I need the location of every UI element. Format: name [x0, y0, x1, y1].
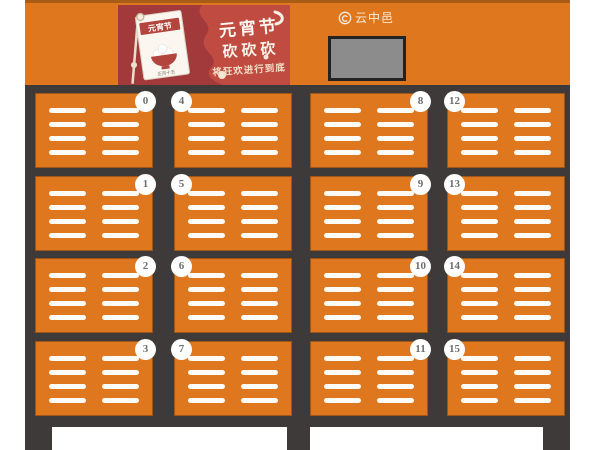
vent-bar [241, 287, 278, 292]
vent-bar [377, 315, 414, 320]
vent-bar [49, 205, 86, 210]
vent-bar [241, 108, 278, 113]
vent-bar [377, 273, 414, 278]
vent-bar [514, 398, 551, 403]
vent-bar [241, 122, 278, 127]
locker-door[interactable]: 8 [310, 93, 428, 168]
locker-number-badge: 9 [410, 174, 431, 195]
vent-slats [175, 94, 291, 155]
vent-bar [324, 301, 361, 306]
vent-bar [49, 384, 86, 389]
locker-door[interactable]: 1 [35, 176, 153, 251]
vent-bar [49, 136, 86, 141]
vent-bar [102, 273, 139, 278]
vent-bar [377, 384, 414, 389]
locker-column: 4 5 [174, 93, 292, 416]
vent-bar [102, 301, 139, 306]
vent-bar [49, 398, 86, 403]
vent-bar [188, 315, 225, 320]
locker-column: 0 1 [35, 93, 153, 416]
locker-number-badge: 4 [171, 91, 192, 112]
vent-bar [49, 301, 86, 306]
vent-bar [461, 108, 498, 113]
vent-bar [461, 191, 498, 196]
vent-bar [49, 191, 86, 196]
vent-bar [188, 370, 225, 375]
vent-bar [514, 233, 551, 238]
vent-bar [514, 384, 551, 389]
vent-bar [102, 384, 139, 389]
vent-bar [324, 356, 361, 361]
vent-bar [461, 219, 498, 224]
locker-number-badge: 10 [410, 256, 431, 277]
vent-bar [102, 356, 139, 361]
vent-bar [49, 219, 86, 224]
brand-logo-icon [338, 11, 352, 25]
vent-bar [377, 136, 414, 141]
vent-bar [461, 122, 498, 127]
vent-slats [448, 94, 564, 155]
vent-bar [188, 384, 225, 389]
vent-bar [461, 233, 498, 238]
vent-bar [49, 233, 86, 238]
vent-bar [377, 219, 414, 224]
vent-bar [377, 287, 414, 292]
locker-door[interactable]: 9 [310, 176, 428, 251]
brand-name: 云中邑 [355, 9, 394, 26]
vent-bar [102, 136, 139, 141]
vent-bar [241, 233, 278, 238]
vent-bar [514, 108, 551, 113]
vent-bar [188, 219, 225, 224]
vent-slats [175, 259, 291, 320]
vent-bar [514, 150, 551, 155]
vent-slats [175, 177, 291, 238]
vent-bar [514, 356, 551, 361]
vent-bar [188, 233, 225, 238]
locker-door[interactable]: 6 [174, 258, 292, 333]
vent-bar [49, 287, 86, 292]
vent-bar [102, 370, 139, 375]
vent-bar [188, 287, 225, 292]
vent-bar [241, 301, 278, 306]
vent-slats [448, 177, 564, 238]
locker-number-badge: 8 [410, 91, 431, 112]
vent-bar [102, 219, 139, 224]
promo-banner: 元宵节 正月十五 元宵节 砍砍砍 将狂欢进行到底 [118, 5, 290, 85]
vent-bar [49, 315, 86, 320]
vent-bar [324, 205, 361, 210]
locker-number-badge: 2 [135, 256, 156, 277]
vent-bar [324, 384, 361, 389]
calendar-ring-icon [136, 13, 144, 21]
cabinet-leg-left [25, 427, 52, 450]
vent-bar [377, 150, 414, 155]
vent-bar [514, 122, 551, 127]
vent-bar [188, 273, 225, 278]
locker-number-badge: 3 [135, 339, 156, 360]
vent-bar [188, 398, 225, 403]
vent-bar [514, 219, 551, 224]
screen-display[interactable] [328, 36, 406, 81]
locker-grid: 0 1 [35, 93, 565, 416]
vent-bar [377, 233, 414, 238]
vent-bar [49, 370, 86, 375]
vent-bar [324, 219, 361, 224]
locker-number-badge: 1 [135, 174, 156, 195]
vent-bar [377, 191, 414, 196]
vent-bar [514, 315, 551, 320]
vent-bar [514, 205, 551, 210]
vent-bar [188, 205, 225, 210]
locker-door[interactable]: 13 [447, 176, 565, 251]
vent-bar [461, 301, 498, 306]
vent-bar [514, 191, 551, 196]
vent-bar [514, 287, 551, 292]
vent-bar [461, 356, 498, 361]
locker-door[interactable]: 15 [447, 341, 565, 416]
vent-bar [324, 191, 361, 196]
vent-bar [49, 356, 86, 361]
vent-bar [188, 108, 225, 113]
locker-number-badge: 7 [171, 339, 192, 360]
vent-bar [241, 219, 278, 224]
vent-bar [324, 287, 361, 292]
vent-bar [514, 136, 551, 141]
locker-column: 12 13 [447, 93, 565, 416]
vent-bar [188, 122, 225, 127]
locker-number-badge: 13 [444, 174, 465, 195]
locker-door[interactable]: 3 [35, 341, 153, 416]
promo-banner-art: 元宵节 正月十五 元宵节 砍砍砍 将狂欢进行到底 [118, 5, 290, 85]
vent-bar [377, 301, 414, 306]
vent-bar [324, 122, 361, 127]
locker-door[interactable]: 5 [174, 176, 292, 251]
vent-bar [324, 136, 361, 141]
vent-bar [324, 398, 361, 403]
vent-bar [241, 150, 278, 155]
vent-bar [324, 150, 361, 155]
vent-bar [461, 370, 498, 375]
vent-bar [324, 233, 361, 238]
cabinet-header: 元宵节 正月十五 元宵节 砍砍砍 将狂欢进行到底 [25, 0, 570, 85]
vent-bar [188, 356, 225, 361]
vent-bar [377, 205, 414, 210]
vent-bar [102, 191, 139, 196]
vent-bar [188, 191, 225, 196]
locker-door[interactable]: 7 [174, 341, 292, 416]
vent-bar [324, 315, 361, 320]
locker-door[interactable]: 4 [174, 93, 292, 168]
locker-door[interactable]: 14 [447, 258, 565, 333]
vent-bar [49, 150, 86, 155]
vent-bar [461, 315, 498, 320]
vent-bar [377, 356, 414, 361]
vent-slats [175, 342, 291, 403]
cabinet-leg-right [543, 427, 570, 450]
vent-bar [241, 273, 278, 278]
locker-door[interactable]: 10 [310, 258, 428, 333]
vent-bar [49, 108, 86, 113]
vent-bar [377, 370, 414, 375]
vent-bar [461, 287, 498, 292]
locker-number-badge: 12 [444, 91, 465, 112]
vent-bar [241, 136, 278, 141]
vent-bar [461, 150, 498, 155]
locker-door[interactable]: 11 [310, 341, 428, 416]
vent-bar [461, 205, 498, 210]
vent-bar [102, 108, 139, 113]
vent-bar [514, 370, 551, 375]
vent-bar [102, 150, 139, 155]
locker-number-badge: 15 [444, 339, 465, 360]
vent-slats [448, 342, 564, 403]
vent-bar [102, 398, 139, 403]
vent-bar [461, 384, 498, 389]
locker-column: 8 9 [310, 93, 428, 416]
vent-bar [514, 301, 551, 306]
vent-bar [241, 191, 278, 196]
cabinet-body: 元宵节 正月十五 元宵节 砍砍砍 将狂欢进行到底 [25, 0, 570, 427]
vent-bar [324, 108, 361, 113]
vent-bar [241, 356, 278, 361]
vent-bar [102, 122, 139, 127]
vent-bar [49, 122, 86, 127]
vent-bar [241, 315, 278, 320]
locker-machine: 元宵节 正月十五 元宵节 砍砍砍 将狂欢进行到底 [0, 0, 600, 450]
vent-bar [102, 205, 139, 210]
locker-number-badge: 11 [410, 339, 431, 360]
vent-bar [461, 398, 498, 403]
vent-bar [241, 384, 278, 389]
vent-bar [377, 108, 414, 113]
vent-bar [188, 301, 225, 306]
vent-bar [102, 287, 139, 292]
locker-door[interactable]: 12 [447, 93, 565, 168]
vent-bar [377, 398, 414, 403]
cabinet-leg-middle [287, 427, 310, 450]
vent-bar [377, 122, 414, 127]
vent-bar [461, 273, 498, 278]
vent-bar [514, 273, 551, 278]
vent-bar [324, 370, 361, 375]
vent-bar [241, 398, 278, 403]
brand-logo: 云中邑 [338, 9, 394, 26]
locker-door[interactable]: 0 [35, 93, 153, 168]
vent-bar [241, 205, 278, 210]
vent-bar [102, 233, 139, 238]
vent-slats [448, 259, 564, 320]
vent-bar [49, 273, 86, 278]
vent-bar [102, 315, 139, 320]
vent-bar [188, 150, 225, 155]
vent-bar [188, 136, 225, 141]
vent-bar [324, 273, 361, 278]
vent-bar [461, 136, 498, 141]
locker-door[interactable]: 2 [35, 258, 153, 333]
locker-number-badge: 5 [171, 174, 192, 195]
vent-bar [241, 370, 278, 375]
locker-number-badge: 0 [135, 91, 156, 112]
